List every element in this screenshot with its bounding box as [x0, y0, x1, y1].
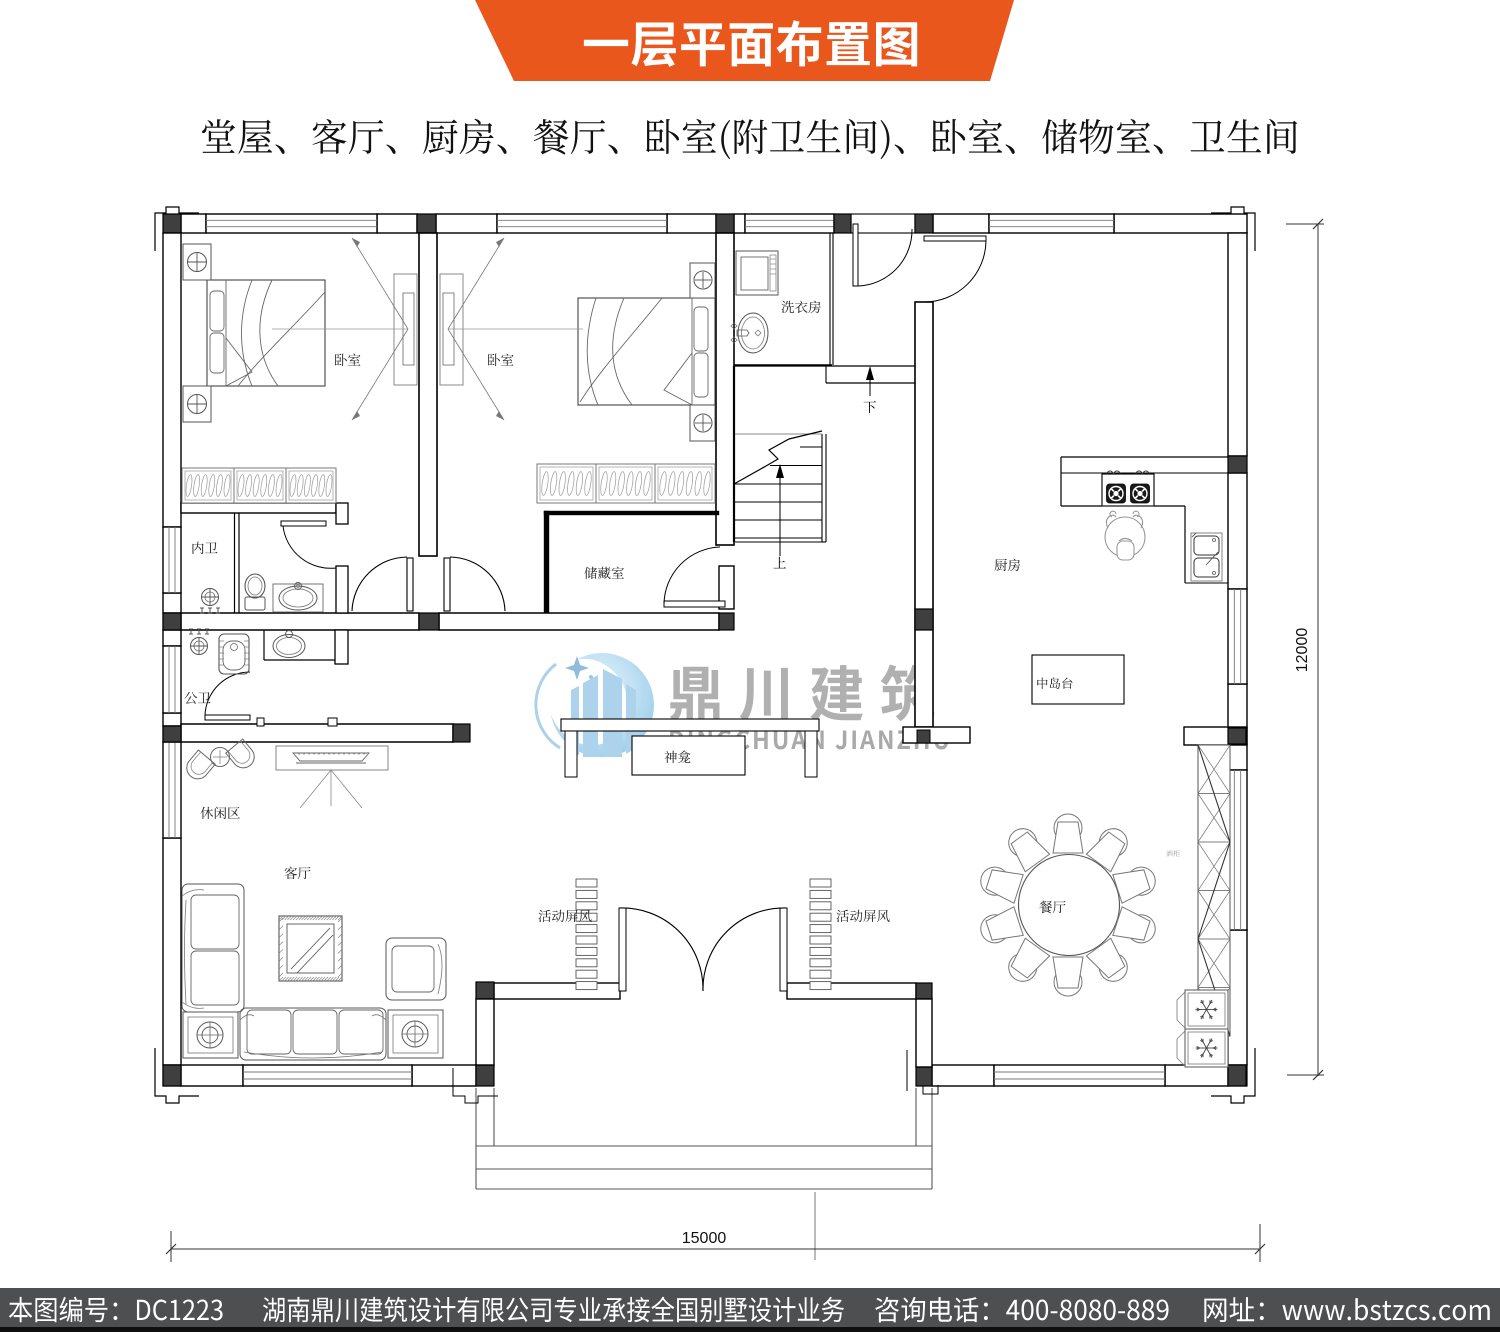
svg-text:12000: 12000	[1294, 628, 1311, 673]
svg-text:15000: 15000	[682, 1230, 727, 1247]
